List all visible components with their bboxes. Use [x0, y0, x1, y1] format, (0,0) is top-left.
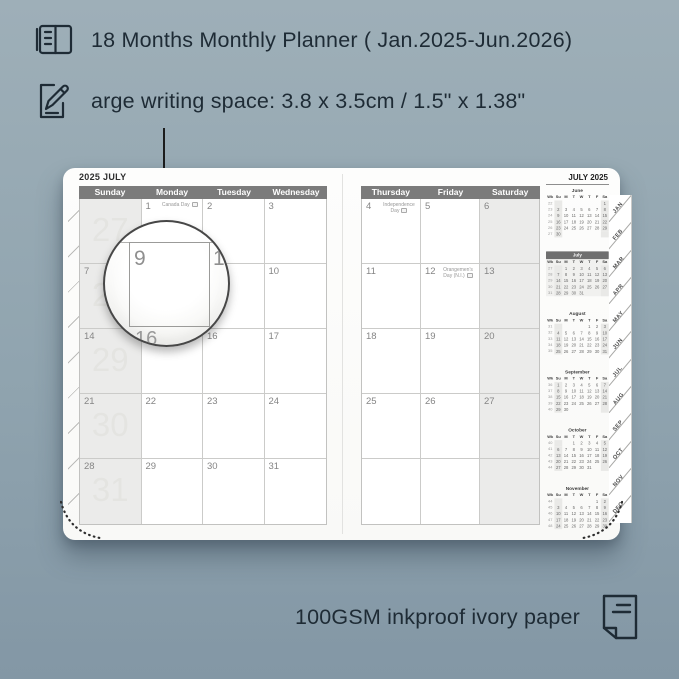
mini-calendar-october: OctoberWkSuMTWTFSa4012345416789101112421…: [546, 427, 609, 471]
month-tab-jan: JAN: [609, 195, 632, 222]
date-number: 20: [484, 331, 495, 342]
mini-week-number: 44: [546, 465, 554, 471]
day-header-tuesday: Tuesday: [203, 186, 265, 199]
planner-spread: 2025 JULY SundayMondayTuesdayWednesday 2…: [63, 168, 620, 540]
mini-date: 30: [554, 231, 562, 237]
date-number: 19: [425, 331, 436, 342]
mini-date: [601, 465, 609, 471]
mini-calendar-grid: WkSuMTWTFSa27123456287891011121329141516…: [546, 259, 609, 296]
date-number: 22: [146, 396, 157, 407]
day-header-wednesday: Wednesday: [265, 186, 327, 199]
calendar-cell: 23: [203, 394, 265, 459]
holiday-flag-icon: [401, 208, 407, 213]
calendar-cell: [362, 459, 421, 524]
mini-calendar-grid: WkSuMTWTFSa31123324567891033111213141516…: [546, 317, 609, 354]
mini-calendar-title: September: [546, 368, 609, 375]
holiday-flag-icon: [192, 202, 198, 207]
mini-date: [593, 465, 601, 471]
calendar-cell: 17: [265, 329, 327, 394]
month-tab-label: JUL: [612, 365, 624, 378]
calendar-cell: 25: [362, 394, 421, 459]
feature-row-writing-space: arge writing space: 3.8 x 3.5cm / 1.5" x…: [34, 79, 572, 123]
date-number: 13: [484, 266, 495, 277]
mini-date: 27: [570, 348, 578, 354]
mini-week-number: 40: [546, 407, 554, 413]
calendar-cell: 3: [265, 199, 327, 264]
ivory-paper-icon: [595, 590, 645, 644]
mini-date: [601, 407, 609, 413]
month-tab-jul: JUL: [609, 359, 632, 386]
mini-week-number: 27: [546, 231, 554, 237]
mini-date: 29: [585, 348, 593, 354]
month-tab-label: JUN: [612, 338, 625, 351]
mini-date: 30: [578, 465, 586, 471]
mini-date: [593, 407, 601, 413]
month-tab-mar: MAR: [609, 250, 632, 277]
calendar-cell: 5: [421, 199, 480, 264]
calendar-cell: 31: [265, 459, 327, 524]
calendar-cell: 18: [362, 329, 421, 394]
month-tab-nov: NOV: [609, 468, 632, 495]
paper-quality-caption: 100GSM inkproof ivory paper: [295, 590, 645, 644]
planner-book-icon: [34, 22, 74, 58]
calendar-cell: 29: [142, 459, 204, 524]
mini-date: [593, 290, 601, 296]
right-day-header-bar: ThursdayFridaySaturday: [361, 186, 540, 199]
calendar-cell: 20: [480, 329, 539, 394]
left-page-title: 2025 JULY: [79, 172, 126, 182]
magnified-date-right: 10: [213, 247, 230, 271]
mini-date: 27: [554, 465, 562, 471]
mini-date: 25: [562, 523, 570, 529]
month-tab-label: FEB: [612, 229, 625, 242]
month-tab-label: MAY: [612, 310, 625, 324]
page-curl-bottom-right: [581, 500, 623, 542]
mini-date: 28: [554, 290, 562, 296]
calendar-cell: 26: [421, 394, 480, 459]
date-number: 17: [269, 331, 280, 342]
calendar-cell: 24: [265, 394, 327, 459]
calendar-cell: 4Independence Day: [362, 199, 421, 264]
month-tab-label: AUG: [612, 392, 625, 406]
month-tab-label: OCT: [612, 447, 625, 461]
mini-date: 26: [562, 348, 570, 354]
date-number: 4: [366, 201, 371, 212]
mini-date: [570, 231, 578, 237]
calendar-cell: 6: [480, 199, 539, 264]
mini-date: 29: [570, 465, 578, 471]
mini-date: 30: [562, 407, 570, 413]
month-tab-jun: JUN: [609, 331, 632, 358]
writing-space-icon: [34, 79, 74, 123]
magnified-date: 9: [134, 247, 146, 271]
month-tab-apr: APR: [609, 277, 632, 304]
month-tab-aug: AUG: [609, 386, 632, 413]
mini-date: 28: [562, 465, 570, 471]
mini-date: [578, 407, 586, 413]
date-number: 7: [84, 266, 89, 277]
paper-quality-text: 100GSM inkproof ivory paper: [295, 605, 580, 630]
calendar-cell: 10: [265, 264, 327, 329]
mini-date: [562, 231, 570, 237]
sidebar-month-title: JULY 2025: [546, 171, 609, 185]
mini-date: [601, 231, 609, 237]
mini-calendar-june: JuneWkSuMTWTFSa2212323456782491011121314…: [546, 187, 609, 237]
feature-text-months: 18 Months Monthly Planner ( Jan.2025-Jun…: [91, 28, 572, 53]
mini-calendar-august: AugustWkSuMTWTFSa31123324567891033111213…: [546, 310, 609, 354]
date-number: 30: [207, 461, 218, 472]
mini-date: 31: [601, 348, 609, 354]
week-number: 29: [80, 341, 141, 379]
calendar-cell: 3021: [80, 394, 142, 459]
holiday-label: Independence Day: [380, 202, 418, 215]
feature-text-writing-space: arge writing space: 3.8 x 3.5cm / 1.5" x…: [91, 89, 525, 114]
magnifier-circle: 9 10 16: [103, 220, 230, 347]
date-number: 6: [484, 201, 489, 212]
mini-calendar-july: JulyWkSuMTWTFSa2712345628789101112132914…: [546, 251, 609, 296]
day-header-thursday: Thursday: [361, 186, 421, 199]
calendar-cell: 2914: [80, 329, 142, 394]
mini-date: 30: [570, 290, 578, 296]
mini-date: 30: [593, 348, 601, 354]
calendar-cell: [421, 459, 480, 524]
month-tab-oct: OCT: [609, 441, 632, 468]
mini-week-number: 35: [546, 348, 554, 354]
date-number: 5: [425, 201, 430, 212]
mini-week-number: 31: [546, 290, 554, 296]
mini-calendar-sidebar: JULY 2025 JuneWkSuMTWTFSa221232345678249…: [546, 171, 609, 537]
mini-calendar-grid: WkSuMTWTFSa40123454167891011124213141516…: [546, 434, 609, 471]
month-tab-feb: FEB: [609, 222, 632, 249]
date-number: 28: [84, 461, 95, 472]
mini-date: 29: [554, 407, 562, 413]
mini-date: 29: [562, 290, 570, 296]
month-tab-label: NOV: [612, 474, 625, 488]
date-number: 21: [84, 396, 95, 407]
date-number: 11: [366, 266, 376, 277]
calendar-cell: 16: [203, 329, 265, 394]
left-day-header-bar: SundayMondayTuesdayWednesday: [79, 186, 327, 199]
calendar-cell: 11: [362, 264, 421, 329]
date-number: 29: [146, 461, 157, 472]
date-number: 18: [366, 331, 377, 342]
page-curl-bottom-left: [60, 500, 102, 542]
date-number: 14: [84, 331, 95, 342]
mini-date: 31: [585, 465, 593, 471]
mini-date: [601, 290, 609, 296]
mini-date: [578, 231, 586, 237]
date-number: 10: [269, 266, 280, 277]
day-header-friday: Friday: [421, 186, 481, 199]
month-tabs: JANFEBMARAPRMAYJUNJULAUGSEPOCTNOVDEC: [609, 195, 632, 523]
feature-annotations: 18 Months Monthly Planner ( Jan.2025-Jun…: [34, 22, 572, 123]
calendar-cell: 30: [203, 459, 265, 524]
mini-date: 28: [578, 348, 586, 354]
month-tab-label: SEP: [612, 420, 625, 433]
magnified-date-below: 16: [135, 328, 157, 347]
day-header-sunday: Sunday: [79, 186, 141, 199]
date-number: 31: [269, 461, 280, 472]
date-number: 25: [366, 396, 377, 407]
week-number: 30: [80, 406, 141, 444]
mini-date: [570, 407, 578, 413]
date-number: 1: [146, 201, 151, 212]
month-tab-label: MAR: [612, 255, 626, 270]
date-number: 24: [269, 396, 280, 407]
date-number: 3: [269, 201, 274, 212]
day-header-monday: Monday: [141, 186, 203, 199]
calendar-cell: 12Orangemen's Day (N.I.): [421, 264, 480, 329]
date-number: 2: [207, 201, 212, 212]
mini-calendar-title: October: [546, 427, 609, 434]
calendar-cell: 27: [480, 394, 539, 459]
calendar-cell: 19: [421, 329, 480, 394]
date-number: 12: [425, 266, 436, 277]
mini-date: 31: [578, 290, 586, 296]
right-calendar-grid: 4Independence Day561112Orangemen's Day (…: [361, 199, 540, 525]
calendar-cell: [480, 459, 539, 524]
month-tab-may: MAY: [609, 304, 632, 331]
month-tab-sep: SEP: [609, 413, 632, 440]
date-number: 26: [425, 396, 436, 407]
mini-date: [585, 290, 593, 296]
mini-date: [593, 231, 601, 237]
date-number: 27: [484, 396, 495, 407]
holiday-label: Canada Day: [160, 202, 201, 208]
mini-date: [585, 231, 593, 237]
mini-date: [585, 407, 593, 413]
calendar-cell: 13: [480, 264, 539, 329]
calendar-cell: 22: [142, 394, 204, 459]
mini-calendar-title: July: [546, 251, 609, 259]
page-gutter: [342, 174, 343, 534]
mini-calendar-title: August: [546, 310, 609, 317]
mini-calendar-september: SeptemberWkSuMTWTFSa36123456737891011121…: [546, 368, 609, 412]
day-header-saturday: Saturday: [480, 186, 540, 199]
month-tab-label: JAN: [612, 201, 625, 214]
product-image: 18 Months Monthly Planner ( Jan.2025-Jun…: [0, 0, 679, 679]
mini-calendars: JuneWkSuMTWTFSa2212323456782491011121314…: [546, 187, 609, 529]
mini-calendar-grid: WkSuMTWTFSa36123456737891011121314381516…: [546, 376, 609, 413]
mini-date: 24: [554, 523, 562, 529]
holiday-flag-icon: [467, 273, 473, 278]
mini-calendar-title: June: [546, 187, 609, 194]
mini-calendar-title: November: [546, 485, 609, 492]
feature-row-months: 18 Months Monthly Planner ( Jan.2025-Jun…: [34, 22, 572, 58]
mini-calendar-grid: WkSuMTWTFSa22123234567824910111213141525…: [546, 194, 609, 237]
mini-week-number: 48: [546, 523, 554, 529]
date-number: 23: [207, 396, 218, 407]
mini-date: 25: [554, 348, 562, 354]
holiday-label: Orangemen's Day (N.I.): [439, 267, 477, 280]
mini-date: 26: [570, 523, 578, 529]
month-tab-label: APR: [612, 283, 625, 297]
